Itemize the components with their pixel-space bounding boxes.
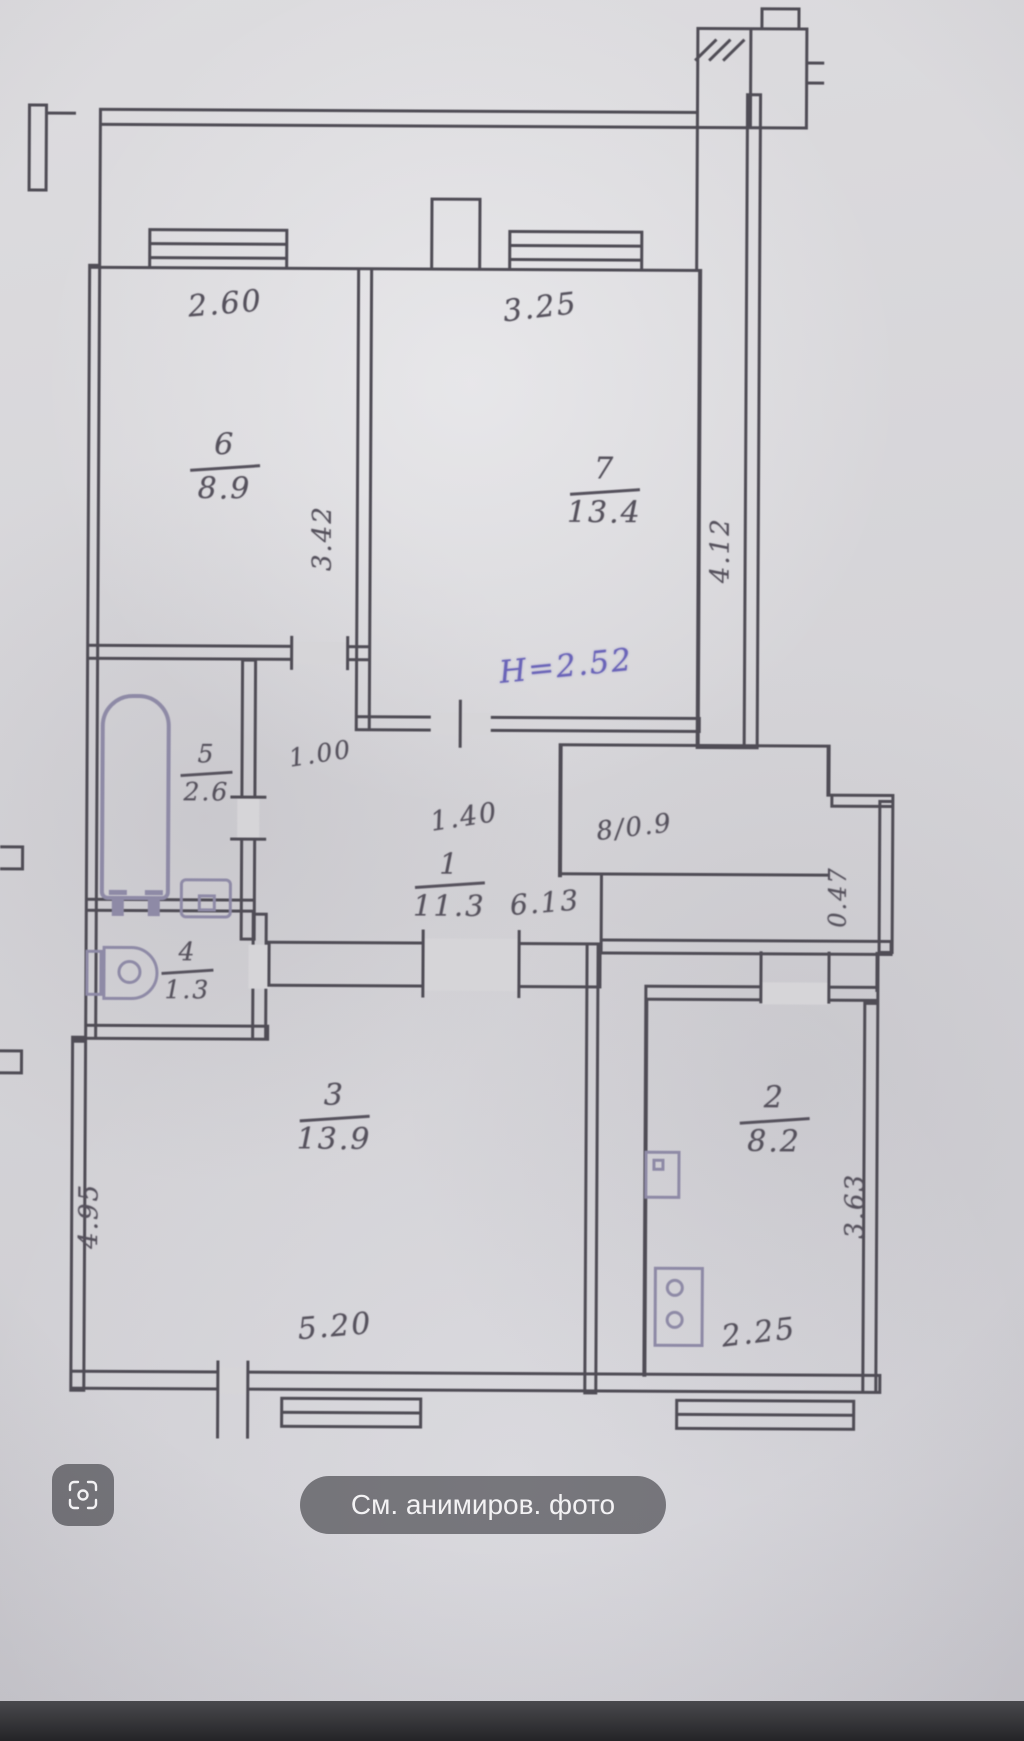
- window-room3: [280, 1425, 422, 1429]
- fraction-bar: [739, 1117, 809, 1125]
- window-room2: [675, 1427, 855, 1431]
- wall-connector-room3: [71, 1036, 87, 1040]
- fraction-bar: [161, 968, 213, 974]
- room-area: 8.9: [198, 472, 252, 507]
- stove-burner-icon: [666, 1311, 684, 1329]
- door-tick: [290, 636, 293, 670]
- door-gap-room3: [423, 939, 519, 992]
- wall-hall-bottom-right: [600, 938, 893, 956]
- wall-room6-room7: [355, 267, 373, 731]
- door-gap-room6: [293, 642, 347, 664]
- dim-hall-opening: 1.40: [428, 797, 500, 838]
- window-room7: [508, 230, 643, 234]
- room-area: 1.3: [164, 976, 210, 1005]
- wall-bottom-exterior: [69, 1370, 881, 1394]
- fraction-bar: [180, 770, 232, 776]
- bath-tap-icon: [109, 890, 127, 895]
- dim-nook: 0.47: [824, 836, 852, 928]
- dim-room2-width: 2.25: [720, 1311, 798, 1354]
- window-room3: [280, 1397, 422, 1401]
- neighbour-mark: [20, 1049, 23, 1074]
- window-room6-jamb: [148, 228, 151, 268]
- dim-room3-side: 4.95: [74, 1134, 105, 1249]
- window-room6: [148, 242, 288, 246]
- window-room3-jamb: [419, 1398, 422, 1429]
- window-room7: [508, 258, 643, 262]
- wall-left-stub-tick: [48, 112, 76, 115]
- dim-room3-width: 5.20: [296, 1306, 373, 1347]
- window-room3-jamb: [280, 1397, 283, 1428]
- ceiling-height-note: Н=2.52: [498, 642, 635, 691]
- window-room7: [508, 244, 643, 248]
- room-label-1: 1 11.3: [402, 847, 497, 923]
- vent-tick: [430, 198, 433, 271]
- toilet-tank-icon: [85, 950, 102, 996]
- fraction-bar: [299, 1114, 369, 1122]
- animate-photo-icon: [66, 1478, 100, 1512]
- bath-tap-icon: [145, 890, 163, 895]
- wall-room7-bottom: [355, 715, 701, 733]
- door-tick: [759, 951, 762, 1003]
- wall-closet-right: [826, 745, 830, 797]
- sink-basin-icon: [198, 894, 216, 911]
- door-tick: [421, 930, 424, 998]
- door-gap-room2: [762, 982, 830, 1004]
- dim-hall-width: 6.13: [509, 883, 582, 922]
- room-label-2: 2 8.2: [726, 1081, 821, 1159]
- wall-closet-left: [558, 743, 563, 877]
- wall-closet-bottom: [558, 872, 830, 876]
- wall-connector-nook: [875, 952, 879, 992]
- window-room6-jamb: [285, 229, 288, 269]
- bath-tap-icon: [148, 896, 160, 916]
- dim-bath-door: 1.00: [287, 734, 354, 772]
- room-number: 4: [179, 938, 197, 967]
- room-label-5: 5 2.6: [170, 740, 242, 807]
- room-number: 2: [764, 1081, 785, 1116]
- door-tick: [346, 636, 349, 670]
- room-area: 8.2: [747, 1125, 801, 1160]
- room-label-6: 6 8.9: [177, 428, 272, 506]
- wall-wc-bottom: [84, 1024, 269, 1041]
- toilet-seat-icon: [117, 960, 141, 984]
- window-room7-jamb: [508, 230, 511, 270]
- door-tick: [459, 700, 462, 748]
- roof-notch: [797, 7, 800, 27]
- closet-label: 8/0.9: [595, 808, 675, 847]
- bathtub-icon: [100, 694, 171, 900]
- room-area: 2.6: [183, 778, 229, 807]
- bath-tap-icon: [112, 896, 124, 916]
- room-number: 1: [439, 848, 460, 881]
- room-area: 13.9: [297, 1122, 372, 1157]
- window-room2-jamb: [675, 1399, 678, 1430]
- room-label-7: 7 13.4: [557, 452, 652, 530]
- chimney-tick: [808, 62, 824, 65]
- dim-room7-side: 4.12: [706, 463, 737, 583]
- room-number: 5: [198, 740, 216, 769]
- room-area: 13.4: [567, 496, 642, 531]
- window-room2: [675, 1413, 855, 1417]
- wall-rooms-top: [88, 266, 701, 272]
- wall-right-nook: [878, 800, 895, 954]
- wall-right-exterior-upper: [743, 93, 762, 749]
- door-gap-balcony: [219, 1367, 247, 1393]
- fraction-bar: [190, 464, 260, 472]
- door-tick: [827, 952, 830, 1004]
- scan-photo-button[interactable]: [52, 1464, 114, 1526]
- room-label-4: 4 1.3: [151, 938, 223, 1005]
- dim-room7-top: 3.25: [501, 286, 579, 329]
- dim-room6-side: 3.42: [308, 451, 339, 571]
- chimney-tick: [808, 82, 824, 85]
- neighbour-mark: [21, 845, 24, 870]
- animated-photo-chip-label: См. анимиров. фото: [351, 1489, 615, 1521]
- window-room6: [148, 256, 288, 260]
- room-number: 7: [594, 452, 615, 487]
- window-room7-jamb: [640, 231, 643, 271]
- dim-room6-top: 2.60: [187, 283, 264, 324]
- door-tick: [517, 930, 520, 998]
- floor-plan-photo: 2.60 3.25 3.42 4.12 1.00 1.40 6.13 0.47 …: [0, 0, 1024, 1741]
- room-number: 6: [214, 428, 235, 463]
- window-room2: [675, 1399, 855, 1403]
- vent-tick: [431, 198, 482, 201]
- wall-left-stub: [28, 103, 48, 191]
- animated-photo-chip[interactable]: См. анимиров. фото: [300, 1476, 666, 1534]
- vent-tick: [478, 198, 481, 271]
- wall-right-step: [830, 794, 894, 808]
- fraction-bar: [569, 488, 639, 496]
- wall-room3-right: [583, 942, 599, 1394]
- door-tick: [230, 838, 266, 841]
- roof-notch: [761, 7, 801, 10]
- kitchen-cabinet-inner-icon: [652, 1159, 664, 1171]
- wall-connector-left: [98, 126, 102, 266]
- room-number: 3: [324, 1079, 345, 1114]
- window-room3: [280, 1411, 422, 1415]
- door-tick: [216, 1360, 219, 1438]
- window-room2-jamb: [852, 1400, 855, 1431]
- wall-top-exterior: [99, 108, 699, 129]
- wall-connector-right: [695, 129, 699, 269]
- dim-room2-side: 3.63: [840, 1124, 871, 1239]
- room-label-3: 3 13.9: [286, 1079, 381, 1157]
- bottom-bar: [0, 1701, 1024, 1741]
- wall-room7-right: [696, 269, 703, 749]
- door-tick: [246, 1361, 249, 1439]
- stove-burner-icon: [666, 1279, 684, 1297]
- room-area: 11.3: [413, 890, 486, 924]
- window-room6: [148, 228, 288, 232]
- closet-door-tick: [600, 875, 603, 939]
